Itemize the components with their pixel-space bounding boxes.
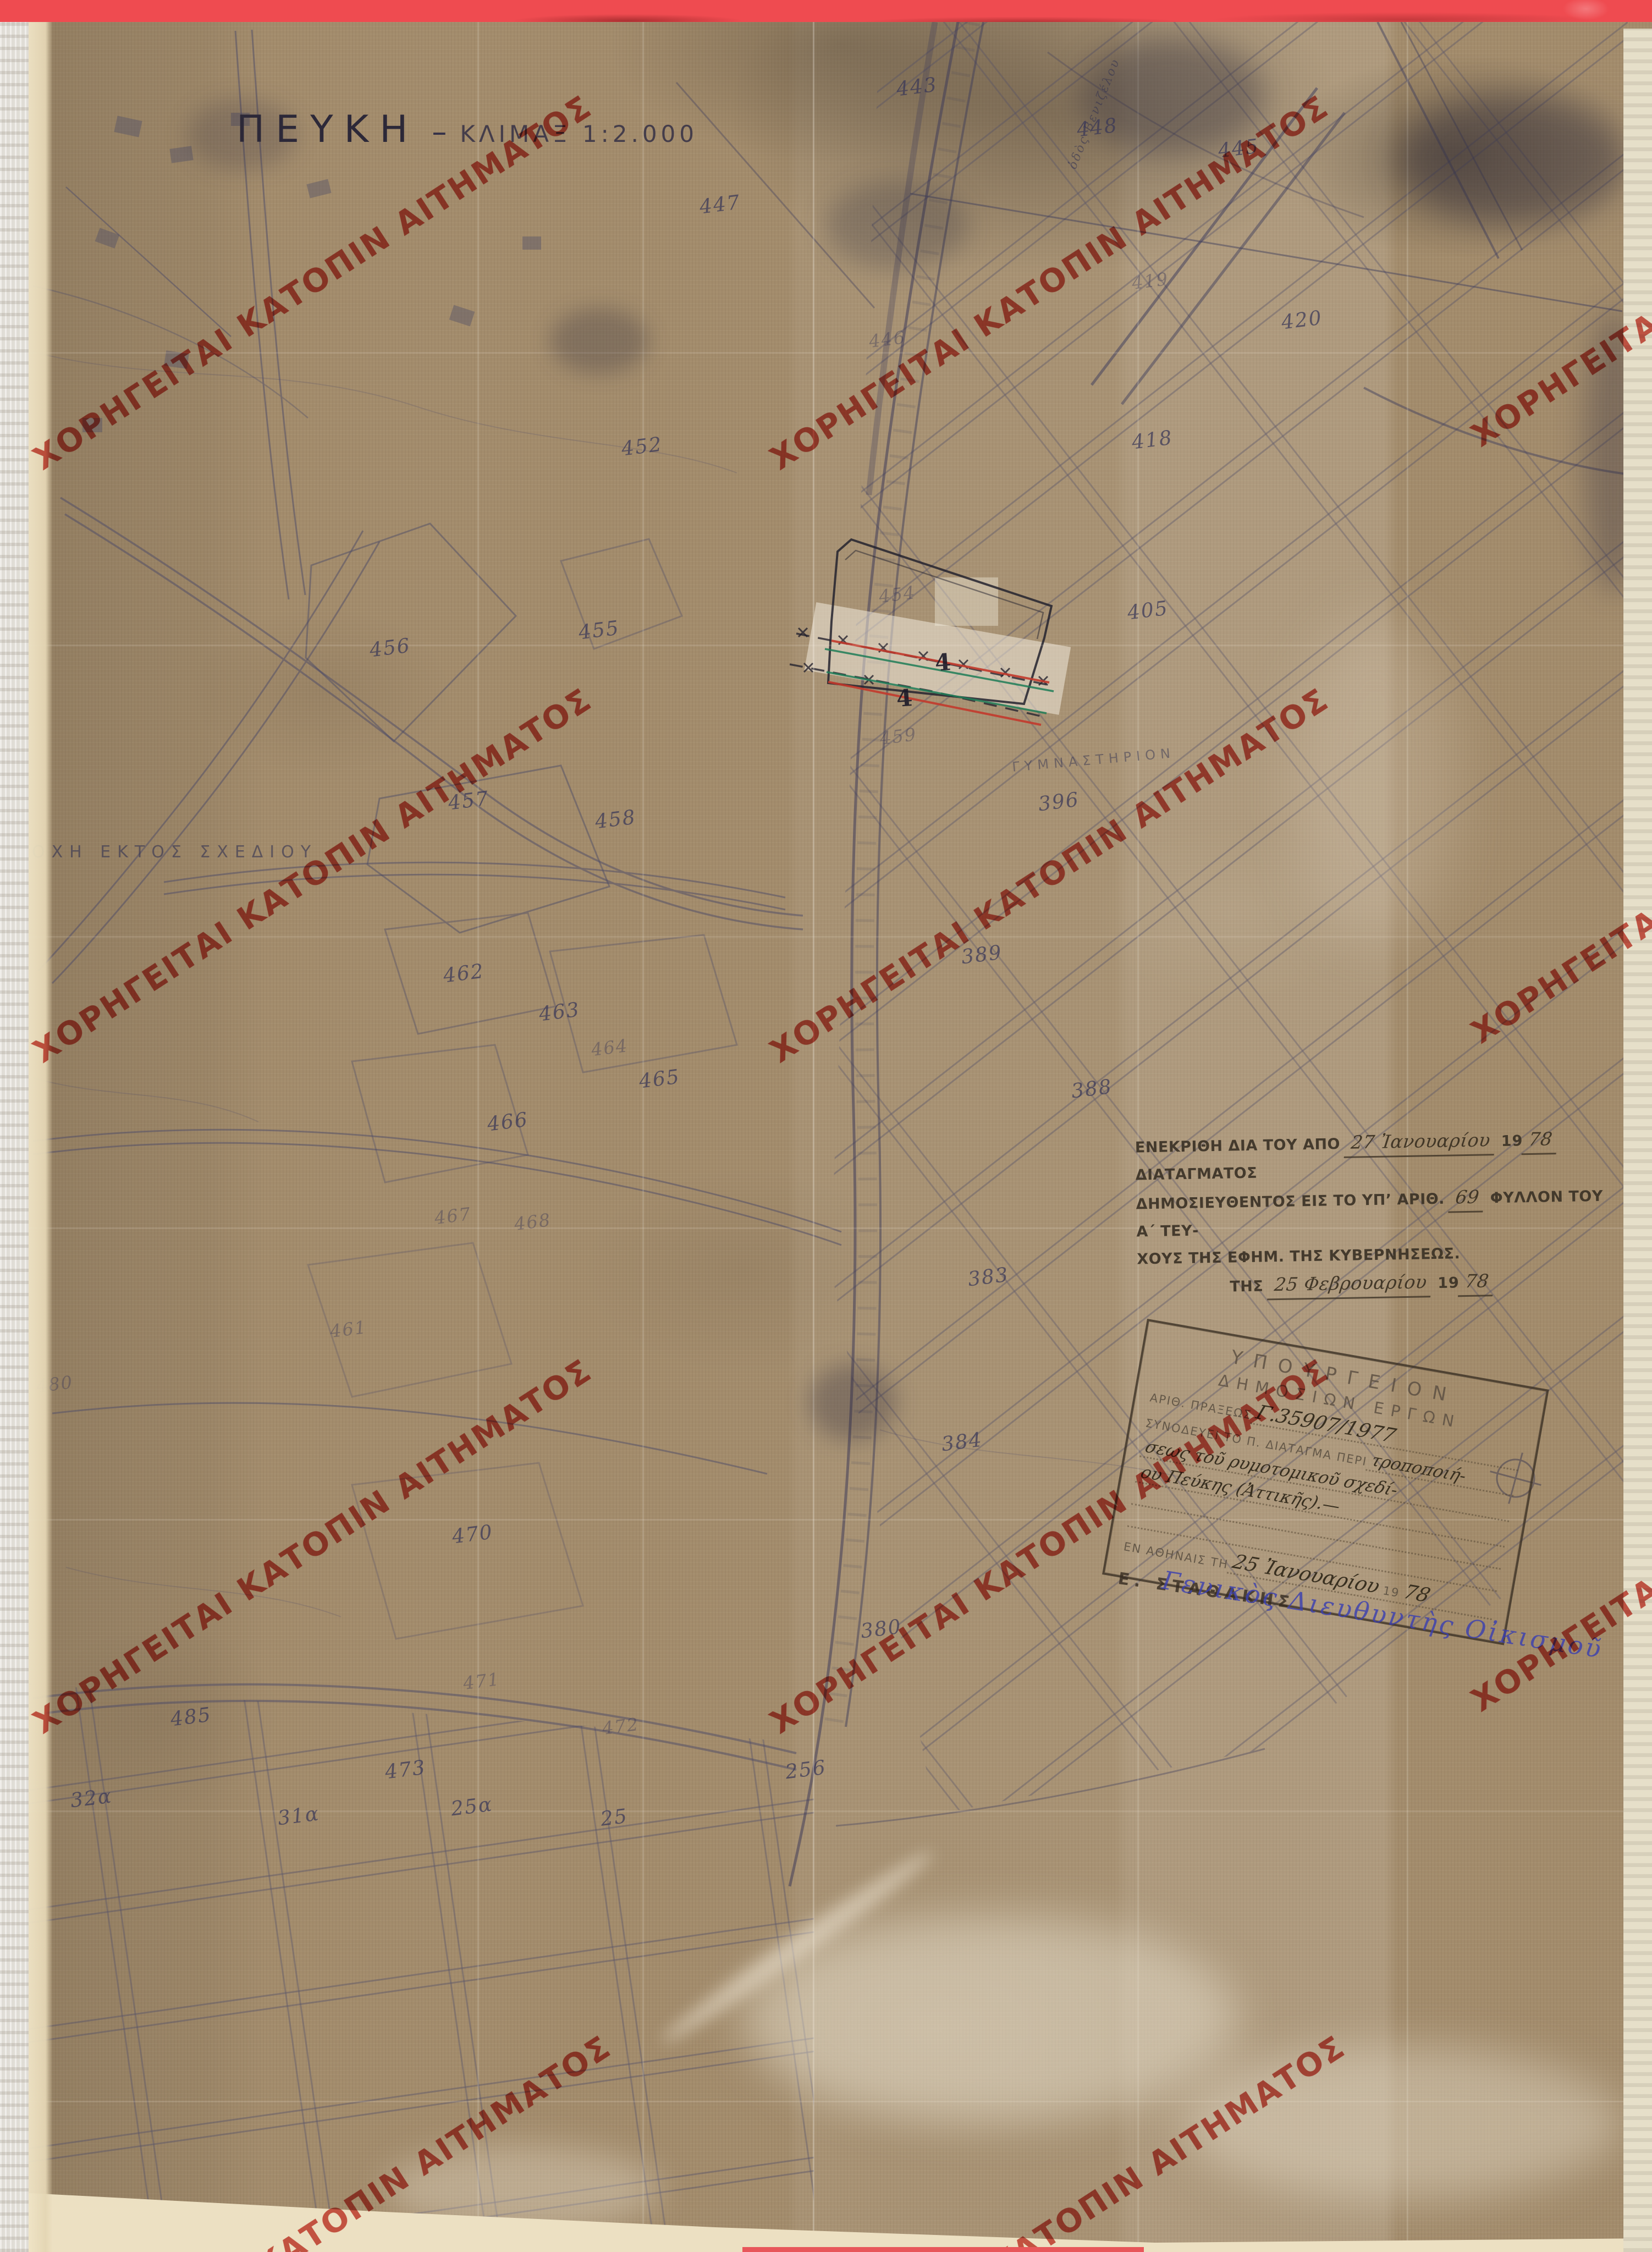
block-label-455: 455 — [577, 617, 621, 645]
block-label-443: 443 — [895, 74, 939, 101]
block-label-473: 473 — [384, 1757, 427, 1784]
block-label-384: 384 — [940, 1429, 984, 1456]
block-label-25: 25 — [599, 1805, 629, 1831]
block-label-454: 454 — [878, 582, 917, 607]
block-label-463: 463 — [538, 999, 581, 1026]
block-label-396: 396 — [1037, 789, 1081, 816]
block-labels-layer: 4474434484454464194204184524054564554544… — [0, 0, 1652, 2252]
approval-year-hand: 78 — [1521, 1125, 1560, 1155]
scanner-backing-strip — [0, 22, 29, 2252]
block-label-388: 388 — [1070, 1076, 1114, 1103]
approval-line-2: ΔΗΜΟΣΙΕΥΘΕΝΤΟΣ ΕΙΣ ΤΟ ΥΠ’ ΑΡΙΘ. 69 ΦΥΛΛΟ… — [1136, 1181, 1610, 1246]
block-label-383: 383 — [967, 1264, 1010, 1291]
approval-handwritten-date: 25 Φεβρουαρίου — [1267, 1268, 1434, 1300]
paper-edge-right — [1623, 29, 1652, 2252]
approval-year-printed: 19 — [1438, 1274, 1460, 1292]
modification-mark: 4 — [934, 648, 952, 676]
block-label-389: 389 — [960, 941, 1004, 969]
block-label-470: 470 — [451, 1521, 494, 1549]
block-label-32α: 32α — [69, 1785, 114, 1813]
block-label-472: 472 — [601, 1714, 640, 1739]
block-label-25α: 25α — [450, 1793, 494, 1821]
block-label-468: 468 — [513, 1209, 552, 1235]
scan-red-bar-top — [0, 0, 1652, 22]
block-label-446: 446 — [868, 327, 907, 352]
block-label-485: 485 — [169, 1704, 213, 1731]
paper-edge-left — [29, 22, 53, 2252]
approval-text: ΔΗΜΟΣΙΕΥΘΕΝΤΟΣ ΕΙΣ ΤΟ ΥΠ’ ΑΡΙΘ. — [1136, 1191, 1445, 1213]
block-label-452: 452 — [620, 433, 664, 461]
block-label-458: 458 — [594, 806, 637, 834]
block-label-461: 461 — [329, 1317, 368, 1342]
block-label-471: 471 — [462, 1669, 501, 1694]
block-label-464: 464 — [590, 1035, 629, 1060]
modification-mark: 4 — [895, 684, 913, 712]
block-label-462: 462 — [442, 960, 486, 988]
block-label-380: 380 — [860, 1616, 903, 1643]
block-label-459: 459 — [879, 724, 918, 749]
block-label-420: 420 — [1280, 307, 1324, 334]
block-label-256: 256 — [784, 1757, 828, 1784]
block-label-31α: 31α — [277, 1803, 321, 1830]
block-label-445: 445 — [1217, 135, 1260, 163]
block-label-419: 419 — [1131, 268, 1170, 294]
block-label-448: 448 — [1076, 114, 1119, 142]
approval-text: ΔΙΑΤΑΓΜΑΤΟΣ — [1135, 1165, 1257, 1184]
scanned-map-page: ΠΕΥΚΗ – ΚΛΙΜΑΞ 1:2.000 ΟΧΗ ΕΚΤΟΣ ΣΧΕΔΙΟΥ… — [0, 0, 1652, 2252]
block-label-447: 447 — [698, 191, 742, 219]
approval-text: ΧΟΥΣ ΤΗΣ ΕΦΗΜ. ΤΗΣ ΚΥΒΕΡΝΗΣΕΩΣ. — [1137, 1245, 1460, 1268]
block-label-456: 456 — [368, 635, 412, 662]
approval-note: ΕΝΕΚΡΙΘΗ ΔΙΑ ΤΟΥ ΑΠΟ 27 Ἰανουαρίου 1978 … — [1135, 1125, 1610, 1303]
approval-year-hand: 78 — [1458, 1267, 1496, 1297]
approval-handwritten-date: 27 Ἰανουαρίου — [1344, 1126, 1497, 1158]
approval-handwritten-number: 69 — [1449, 1183, 1487, 1213]
approval-year-printed: 19 — [1501, 1132, 1523, 1150]
block-label-467: 467 — [433, 1203, 472, 1229]
block-label-466: 466 — [486, 1109, 530, 1136]
approval-text: ΤΗΣ — [1230, 1278, 1264, 1295]
block-label-418: 418 — [1131, 427, 1174, 454]
block-label-405: 405 — [1126, 597, 1170, 625]
block-label-465: 465 — [638, 1066, 681, 1093]
approval-text: ΕΝΕΚΡΙΘΗ ΔΙΑ ΤΟΥ ΑΠΟ — [1135, 1136, 1341, 1157]
scan-red-strip-bottom — [742, 2247, 1144, 2252]
approval-line-1: ΕΝΕΚΡΙΘΗ ΔΙΑ ΤΟΥ ΑΠΟ 27 Ἰανουαρίου 1978 … — [1135, 1125, 1609, 1190]
block-label-457: 457 — [447, 788, 491, 815]
